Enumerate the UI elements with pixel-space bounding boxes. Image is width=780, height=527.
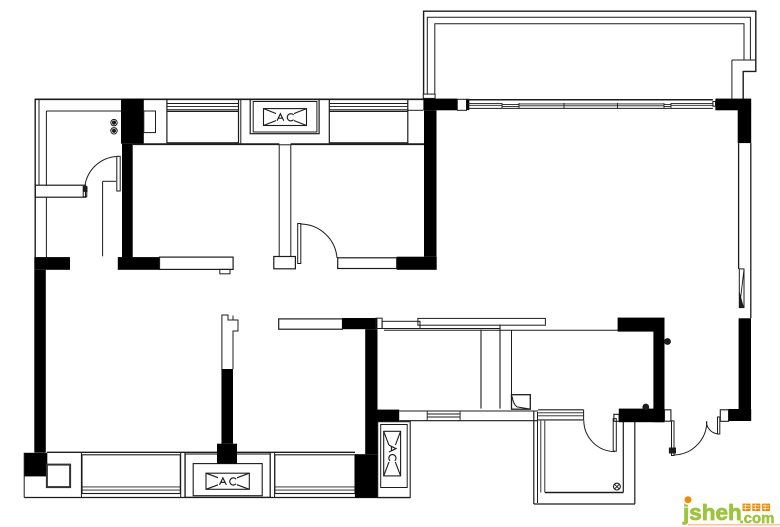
svg-text:jsheh: jsheh [682, 500, 742, 525]
